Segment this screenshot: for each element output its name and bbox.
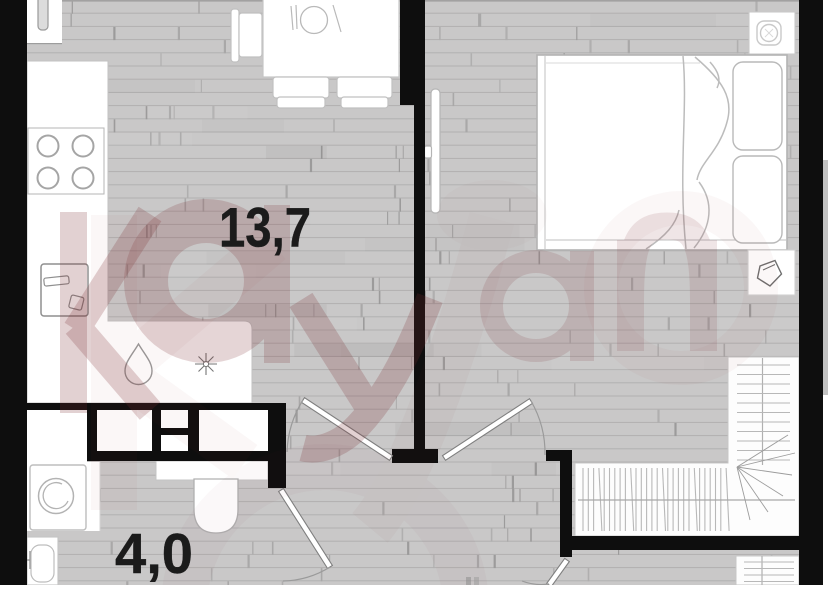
svg-text:13,7: 13,7 (219, 196, 311, 259)
svg-text:4,0: 4,0 (115, 522, 193, 585)
